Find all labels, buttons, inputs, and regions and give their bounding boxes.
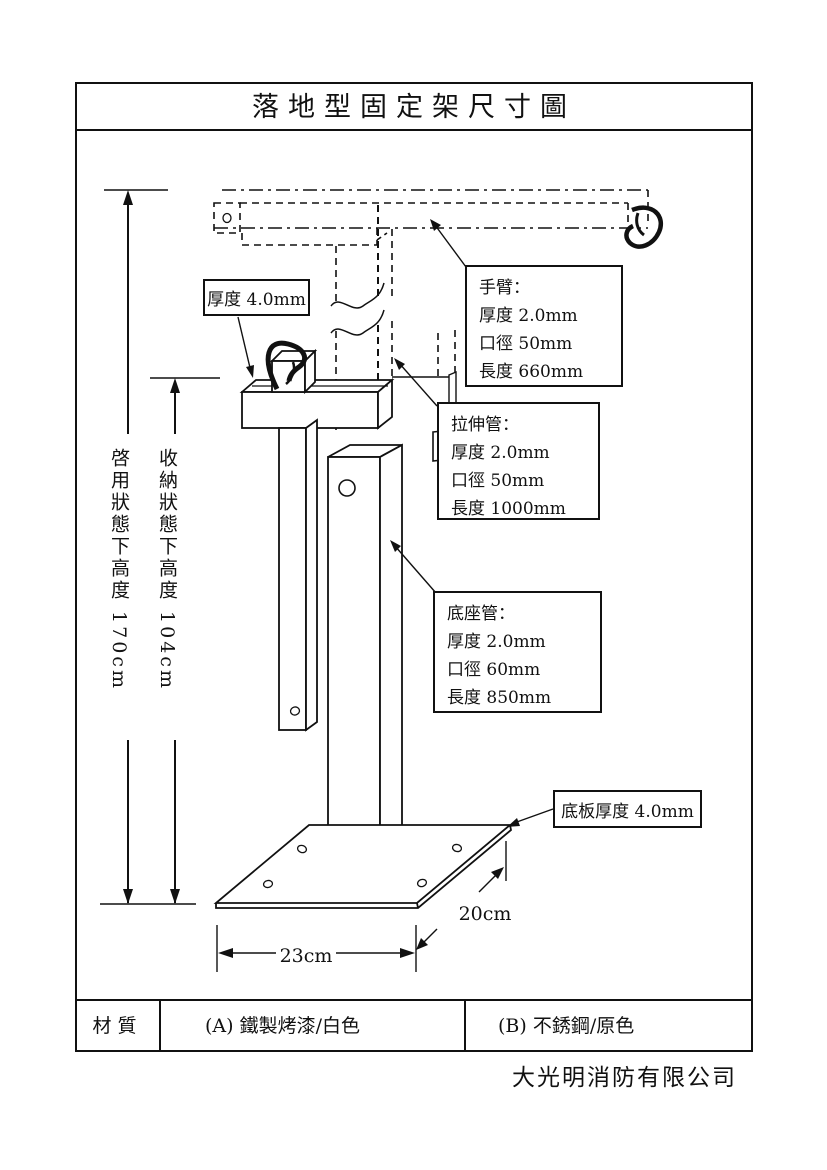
arm-phantom-outline <box>214 190 648 245</box>
callout-extension-tube: 拉伸管： 厚度 2.0mm 口徑 50mm 長度 1000mm <box>437 402 600 520</box>
company-name: 大光明消防有限公司 <box>512 1058 737 1092</box>
callout-top-plate-thickness: 厚度 4.0mm <box>203 279 310 316</box>
callout-top-plate-thickness-text: 厚度 4.0mm <box>207 285 306 310</box>
callout-extension-line: 口徑 50mm <box>451 467 598 495</box>
dimension-plate-depth: 20cm <box>455 903 515 925</box>
callout-base-tube-line: 厚度 2.0mm <box>447 628 600 656</box>
dimension-deployed-height: 啓用狀態下高度 170cm <box>104 448 134 748</box>
break-line <box>331 310 384 335</box>
callout-extension-line: 厚度 2.0mm <box>451 439 598 467</box>
callout-base-plate-thickness: 底板厚度 4.0mm <box>553 790 702 828</box>
callout-extension-line: 長度 1000mm <box>451 495 598 523</box>
callout-arm-title: 手臂： <box>479 274 621 302</box>
callout-arm-line: 長度 660mm <box>479 358 621 386</box>
page-title: 落地型固定架尺寸圖 <box>76 86 752 130</box>
callout-base-tube: 底座管： 厚度 2.0mm 口徑 60mm 長度 850mm <box>433 591 602 713</box>
dimension-plate-width: 23cm <box>276 945 336 967</box>
callout-base-tube-title: 底座管： <box>447 600 600 628</box>
callout-extension-title: 拉伸管： <box>451 411 598 439</box>
break-line <box>331 283 384 308</box>
callout-base-tube-line: 口徑 60mm <box>447 656 600 684</box>
base-plate <box>216 825 511 908</box>
material-option-a-cell: (A) 鐵製烤漆/白色 <box>205 1000 460 1052</box>
arm-hook <box>626 208 660 247</box>
callout-base-tube-line: 長度 850mm <box>447 684 600 712</box>
callout-arm-line: 厚度 2.0mm <box>479 302 621 330</box>
base-tube <box>328 445 402 880</box>
material-option-b-cell: (B) 不銹鋼/原色 <box>498 1000 748 1052</box>
callout-arm: 手臂： 厚度 2.0mm 口徑 50mm 長度 660mm <box>465 265 623 387</box>
stored-tube <box>279 420 317 730</box>
drawing-sheet: 落地型固定架尺寸圖 厚度 4.0mm 手臂： 厚度 2.0mm 口徑 50mm … <box>0 0 827 1170</box>
material-header-cell: 材質 <box>75 1000 160 1052</box>
dimension-stored-height: 收納狀態下高度 104cm <box>152 448 182 748</box>
callout-base-plate-thickness-text: 底板厚度 4.0mm <box>561 797 694 822</box>
callout-arm-line: 口徑 50mm <box>479 330 621 358</box>
